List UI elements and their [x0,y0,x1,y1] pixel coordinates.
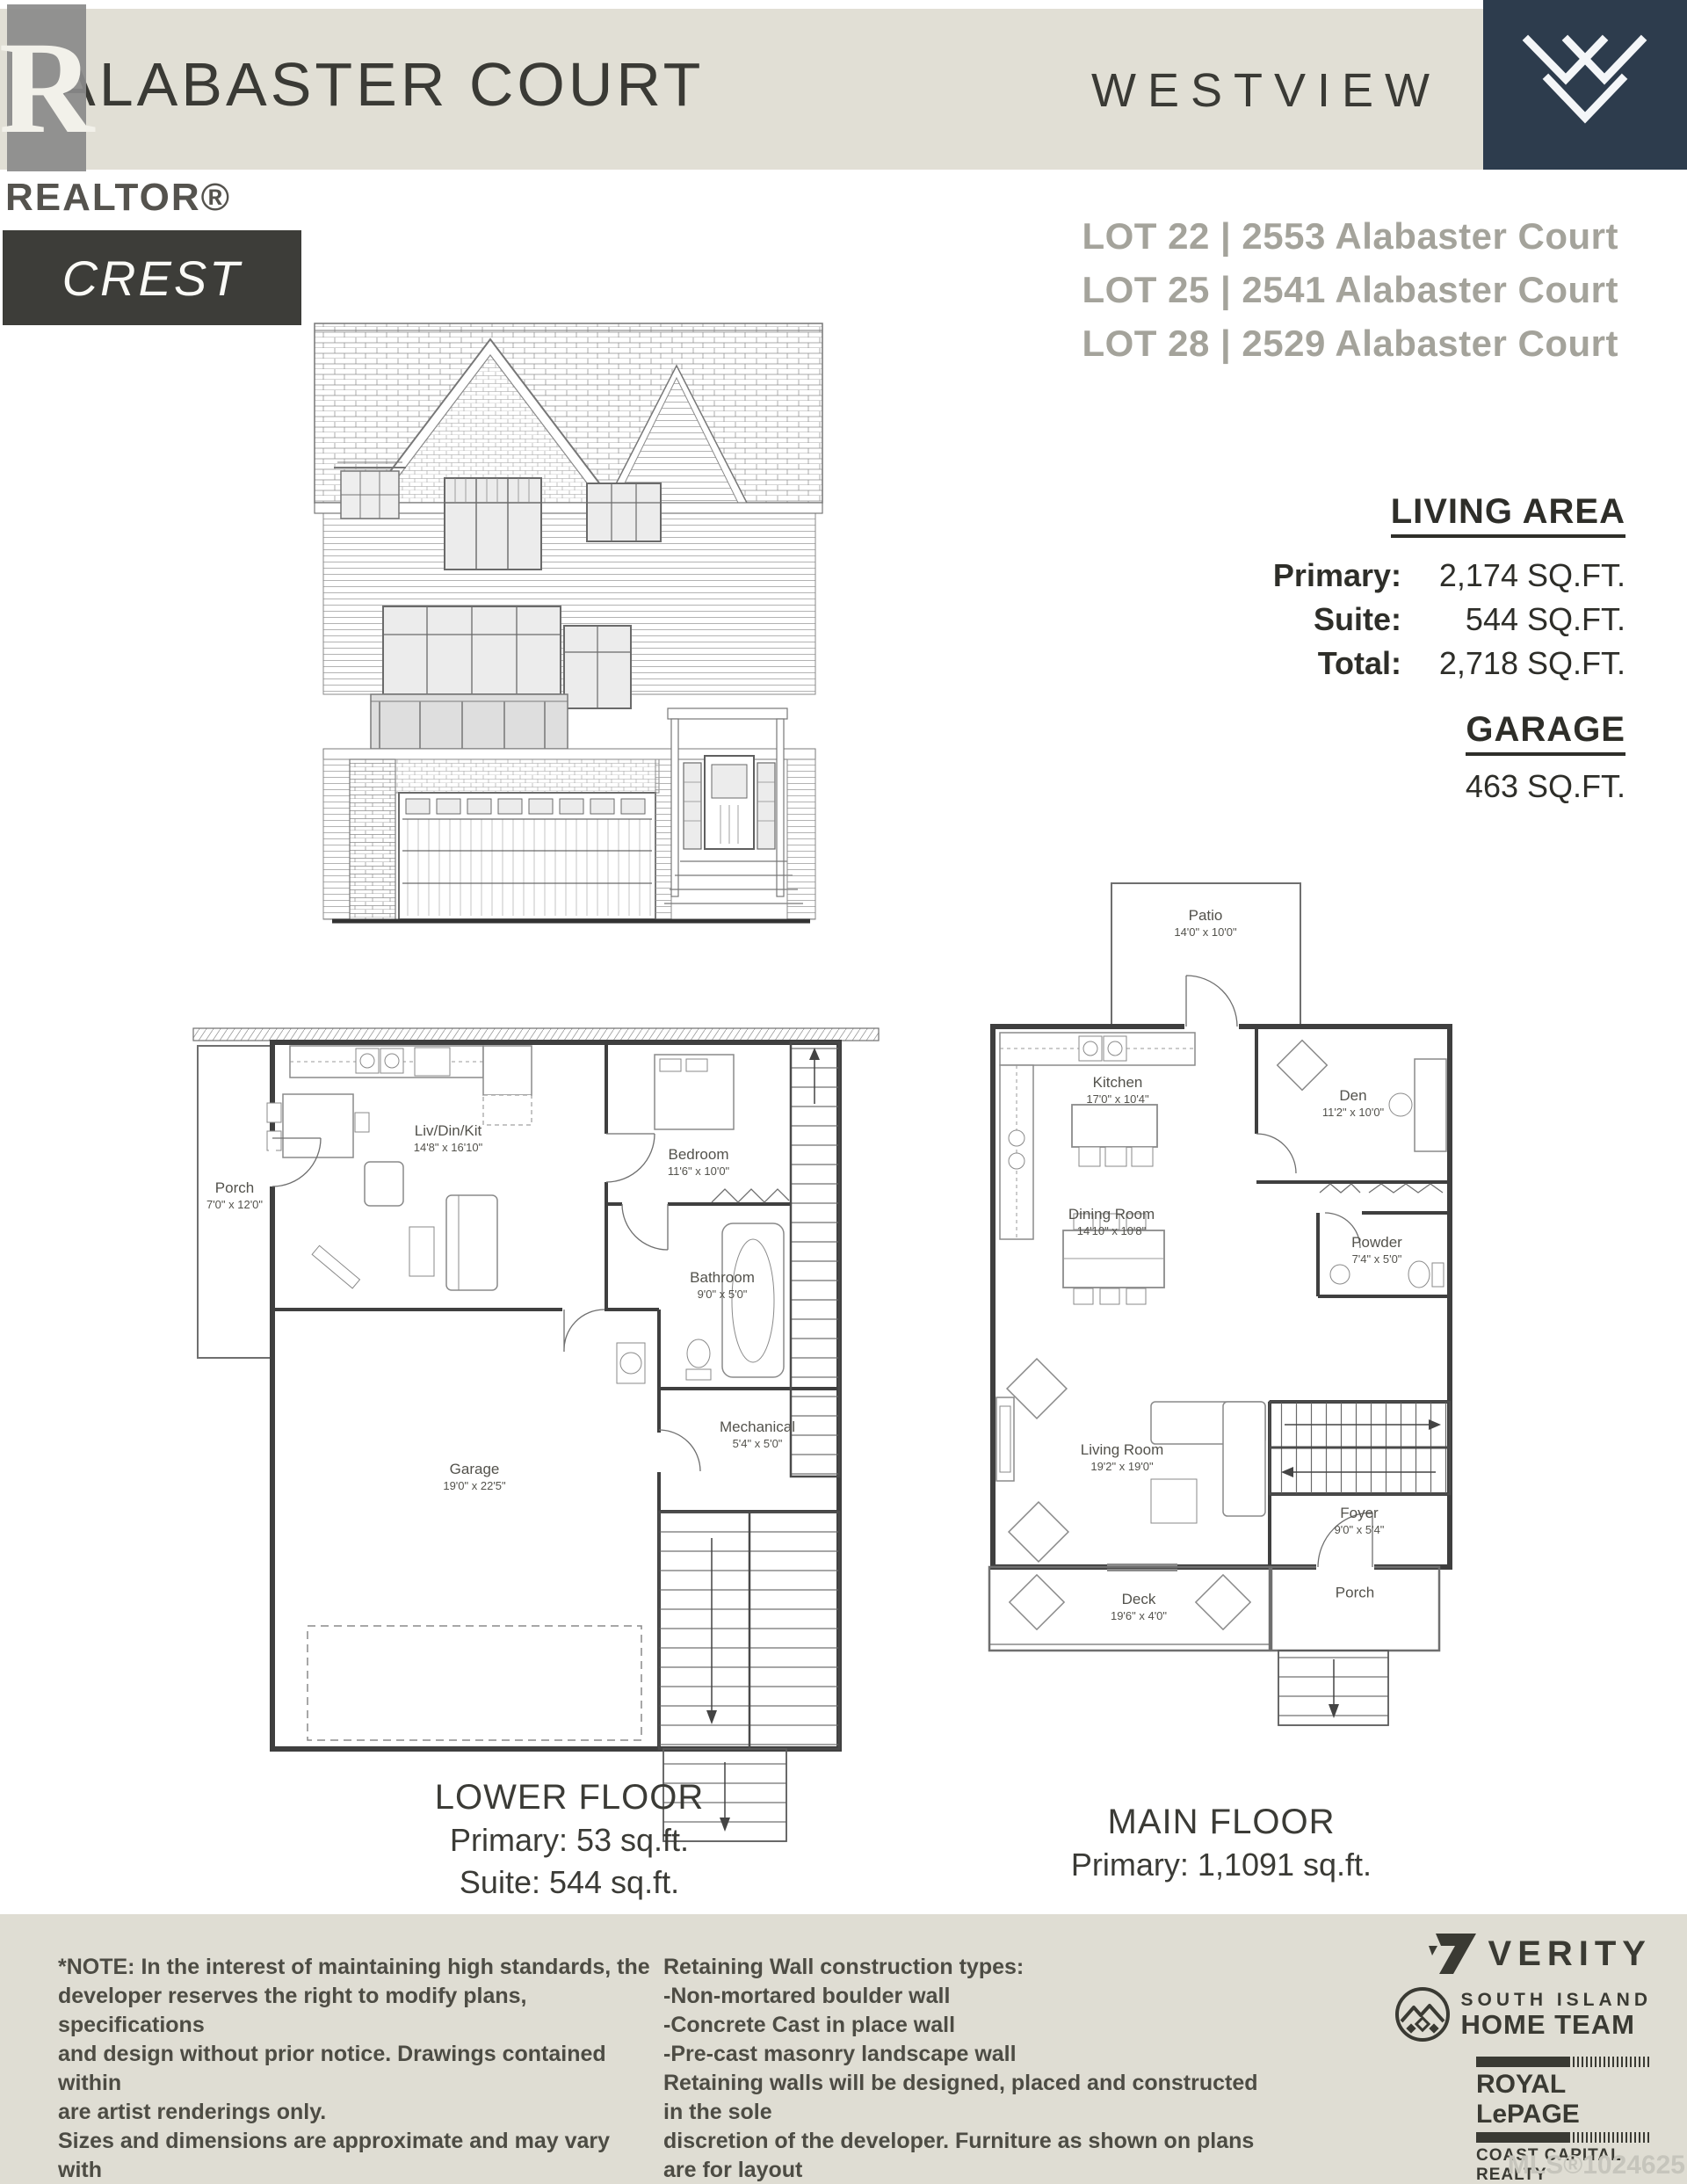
mountain-circle-icon [1394,1986,1451,2043]
room-dims: 5'4" x 5'0" [720,1436,795,1451]
room-label-dining: Dining Room 14'10" x 10'8" [1068,1205,1155,1238]
room-label-porch-lower: Porch 7'0" x 12'0" [206,1179,263,1212]
room-dims: 14'0" x 10'0" [1174,925,1236,940]
westview-logo-tile [1483,0,1687,170]
realtor-r-glyph: R [0,22,94,154]
room-label-mechanical: Mechanical 5'4" x 5'0" [720,1418,795,1451]
team-line1: SOUTH ISLAND [1461,1990,1653,2011]
verity-wordmark: VERITY [1488,1934,1652,1974]
room-name: Porch [206,1179,263,1197]
room-label-porch-main: Porch [1336,1584,1374,1602]
room-name: Liv/Din/Kit [414,1121,483,1140]
room-name: Powder [1351,1233,1402,1252]
lot-address-1: LOT 22 | 2553 Alabaster Court [1082,209,1618,263]
room-dims: 19'6" x 4'0" [1111,1608,1167,1623]
room-name: Deck [1111,1590,1167,1608]
room-dims: 7'4" x 5'0" [1351,1252,1402,1266]
garage-header-shake [395,759,659,793]
westview-wordmark: WESTVIEW [1091,63,1441,118]
south-island-home-team-logo: SOUTH ISLAND HOME TEAM [1388,1986,1652,2043]
lower-right-siding [787,759,815,919]
lot-address-3: LOT 28 | 2529 Alabaster Court [1082,316,1618,370]
closet-marks [1320,1184,1360,1193]
room-label-foyer: Foyer 9'0" x 5'4" [1335,1504,1385,1537]
room-name: Bathroom [690,1268,755,1287]
closet-marks [1369,1184,1443,1193]
room-name: Kitchen [1086,1073,1148,1092]
room-label-kitchen: Kitchen 17'0" x 10'4" [1086,1073,1148,1107]
living-area-block: LIVING AREA Primary: 2,174 SQ.FT. Suite:… [1164,492,1625,686]
stat-value: 2,718 SQ.FT. [1401,642,1625,686]
garage-block: GARAGE 463 SQ.FT. [1466,710,1625,805]
stat-value: 2,174 SQ.FT. [1401,554,1625,598]
stat-row-suite: Suite: 544 SQ.FT. [1164,598,1625,642]
lot-addresses: LOT 22 | 2553 Alabaster Court LOT 25 | 2… [1082,209,1618,370]
room-name: Den [1322,1086,1384,1105]
room-name: Mechanical [720,1418,795,1436]
rlp-bar-bottom [1476,2132,1652,2143]
room-name: Foyer [1335,1504,1385,1522]
room-name: Garage [443,1460,505,1478]
room-label-deck: Deck 19'6" x 4'0" [1111,1590,1167,1623]
model-name: CREST [62,250,243,307]
patio-outline [1111,883,1300,1027]
caption-stat: Primary: 1,1091 sq.ft. [1019,1844,1423,1886]
realtor-label: REALTOR® [5,176,231,220]
footer-retaining-note: Retaining Wall construction types: -Non-… [663,1953,1278,2184]
lower-doors [269,1134,700,1471]
stat-label: Suite: [1164,598,1401,642]
lower-left-siding [323,759,350,919]
living-area-heading: LIVING AREA [1391,492,1625,538]
room-name: Porch [1336,1584,1374,1602]
caption-stat: Primary: 53 sq.ft. [367,1819,771,1861]
verity-icon [1429,1934,1480,1974]
stat-row-primary: Primary: 2,174 SQ.FT. [1164,554,1625,598]
front-elevation-drawing [308,316,830,932]
caption-title: LOWER FLOOR [367,1775,771,1819]
garage-door [399,793,655,919]
room-label-bedroom: Bedroom 11'6" x 10'0" [668,1145,729,1179]
room-dims: 11'2" x 10'0" [1322,1105,1384,1120]
grade-line [193,1028,879,1041]
room-label-living: Living Room 19'2" x 19'0" [1081,1440,1164,1474]
room-dims: 7'0" x 12'0" [206,1197,263,1212]
room-dims: 19'0" x 22'5" [443,1478,505,1493]
room-name: Bedroom [668,1145,729,1164]
room-label-patio: Patio 14'0" x 10'0" [1174,906,1236,940]
verity-logo: VERITY [1388,1934,1652,1974]
stairs-up [791,1042,839,1477]
page-title: ALABASTER COURT [54,49,704,120]
realtor-logo: R [7,4,86,171]
entry-side-siding [655,759,671,919]
rlp-wordmark: ROYAL LePAGE [1476,2070,1652,2130]
footer-band: *NOTE: In the interest of maintaining hi… [0,1914,1687,2184]
room-dims: 9'0" x 5'0" [690,1287,755,1302]
upper-left-window [334,462,406,519]
room-label-den: Den 11'2" x 10'0" [1322,1086,1384,1120]
upper-center-window [445,478,541,570]
room-name: Living Room [1081,1440,1164,1459]
balcony-rail [371,694,568,749]
stat-label: Primary: [1164,554,1401,598]
stat-label: Total: [1164,642,1401,686]
room-dims: 11'6" x 10'0" [668,1164,729,1179]
room-name: Dining Room [1068,1205,1155,1223]
room-label-garage: Garage 19'0" x 22'5" [443,1460,505,1493]
room-dims: 14'10" x 10'8" [1068,1223,1155,1238]
footer-note: *NOTE: In the interest of maintaining hi… [58,1953,655,2184]
footer-logos: VERITY SOUTH ISLAND HOME TEAM ROYAL LePA… [1388,1934,1652,2184]
westview-w-icon [1515,21,1655,144]
room-dims: 9'0" x 5'4" [1335,1522,1385,1537]
model-name-plate: CREST [3,230,301,325]
flyer-page: ALABASTER COURT WESTVIEW R REALTOR® CRES… [0,0,1687,2184]
garage-value: 463 SQ.FT. [1466,768,1625,805]
upper-right-window [587,483,661,541]
garage-heading: GARAGE [1466,710,1625,756]
lower-floor-caption: LOWER FLOOR Primary: 53 sq.ft. Suite: 54… [367,1775,771,1904]
main-floor-caption: MAIN FLOOR Primary: 1,1091 sq.ft. [1019,1800,1423,1886]
brick-pier [350,759,395,919]
porch-outline [1271,1567,1439,1651]
mls-number: MLS®1024625 [1508,2151,1685,2180]
stat-row-total: Total: 2,718 SQ.FT. [1164,642,1625,686]
caption-title: MAIN FLOOR [1019,1800,1423,1844]
caption-stat: Suite: 544 sq.ft. [367,1861,771,1904]
closet-marks [712,1189,789,1202]
room-dims: 19'2" x 19'0" [1081,1459,1164,1474]
room-dims: 17'0" x 10'4" [1086,1092,1148,1107]
rlp-bar-top [1476,2057,1652,2067]
lot-address-2: LOT 25 | 2541 Alabaster Court [1082,263,1618,316]
stat-value: 544 SQ.FT. [1401,598,1625,642]
room-label-powder: Powder 7'4" x 5'0" [1351,1233,1402,1266]
main-floor-plan [975,874,1467,1736]
room-label-bathroom: Bathroom 9'0" x 5'0" [690,1268,755,1302]
room-dims: 14'8" x 16'10" [414,1140,483,1155]
room-label-livdinkit: Liv/Din/Kit 14'8" x 16'10" [414,1121,483,1155]
team-line2: HOME TEAM [1461,2011,1653,2039]
room-name: Patio [1174,906,1236,925]
main-floor-window [383,606,561,694]
main-floor-right-window [564,626,631,708]
